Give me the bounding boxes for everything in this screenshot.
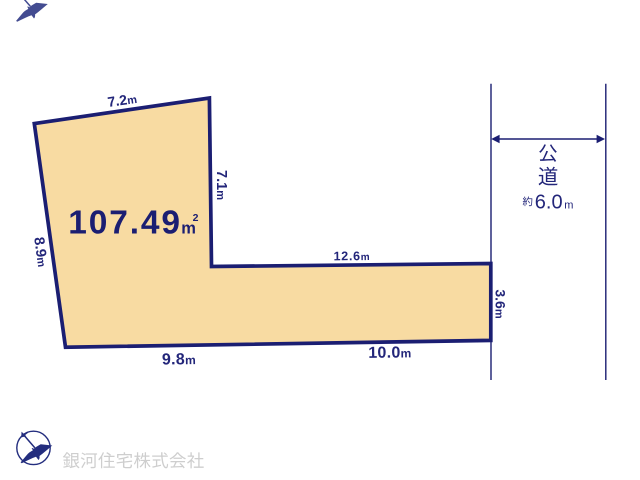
svg-text:7.1m: 7.1m [213,170,229,200]
svg-text:12.6m: 12.6m [334,249,371,263]
svg-text:10.0m: 10.0m [368,344,412,362]
svg-text:6.0: 6.0 [535,191,563,213]
svg-text:2: 2 [193,212,199,224]
svg-text:9.8m: 9.8m [162,351,196,368]
svg-text:m: m [564,199,573,211]
svg-text:107.49: 107.49 [68,205,182,242]
